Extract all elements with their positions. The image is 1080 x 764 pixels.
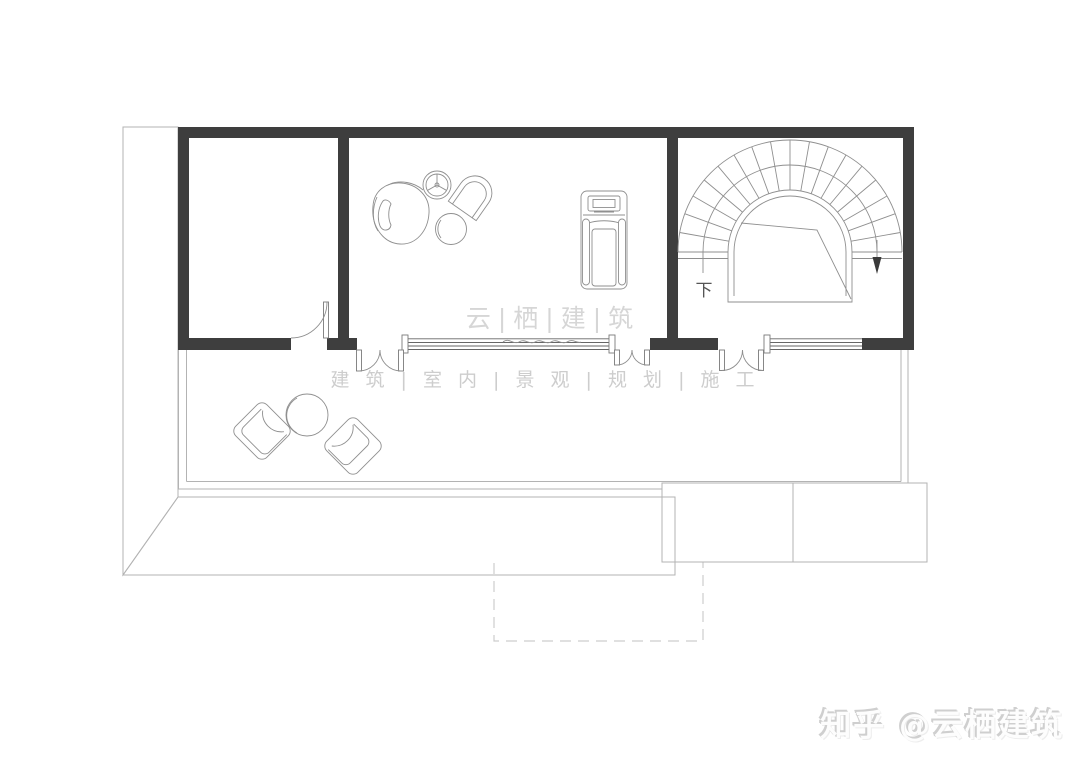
- brand-watermark: 云|栖|建|筑: [466, 304, 640, 333]
- patio-table: [286, 394, 328, 436]
- bottom-wall-seg1: [178, 338, 291, 350]
- bottom-wall-seg4: [862, 338, 914, 350]
- services-watermark: 建 筑 | 室 内 | 景 观 | 规 划 | 施 工: [330, 369, 759, 391]
- double-door-stair-room: [720, 350, 764, 371]
- door-left-room: [291, 302, 329, 338]
- door-swing-arc: [291, 302, 327, 338]
- patio-armchair-left: [231, 400, 293, 462]
- door-swing-arc: [722, 350, 763, 371]
- door-leaf: [357, 350, 362, 371]
- stair-direction-arrow-icon: [873, 257, 882, 274]
- treadmill: [581, 191, 627, 289]
- roof-tiles-right: [662, 483, 927, 562]
- door-leaf: [720, 350, 725, 371]
- side-table: [423, 171, 451, 199]
- lounge-chair: [373, 182, 429, 244]
- door-leaf: [645, 350, 650, 365]
- lounge-furniture-group: [373, 169, 499, 244]
- spiral-stair: 下: [678, 140, 902, 302]
- double-door-terrace-right: [615, 350, 650, 365]
- interior-wall-stair-room: [667, 138, 678, 338]
- exterior-wall-right: [903, 138, 914, 350]
- patio-armchair-right: [322, 415, 384, 477]
- interior-wall-left-room: [338, 138, 349, 338]
- bottom-wall-seg2: [327, 338, 357, 350]
- stair-down-label: 下: [696, 281, 713, 301]
- exterior-wall-left: [178, 138, 189, 350]
- arch-armchair: [448, 169, 498, 220]
- door-swing-arc: [359, 350, 401, 371]
- roof-tiles-bottom: [123, 497, 675, 575]
- stair-arch-outer: [728, 190, 852, 302]
- door-leaf: [615, 350, 620, 365]
- zhihu-watermark: 知乎 @云栖建筑: [820, 700, 1064, 745]
- window-stair-room: [770, 339, 862, 350]
- bottom-wall-seg3: [650, 338, 718, 350]
- door-leaf: [324, 302, 329, 338]
- ottoman: [436, 214, 467, 245]
- door-leaf: [759, 350, 764, 371]
- exterior-wall-top: [178, 127, 914, 138]
- roof-tiles-left: [123, 127, 178, 575]
- door-leaf: [399, 350, 404, 371]
- window-jamb: [764, 335, 770, 353]
- foundation-dashed-outline: [494, 562, 703, 641]
- floor-plan-image: 云|栖|建|筑 建 筑 | 室 内 | 景 观 | 规 划 | 施 工 下: [0, 0, 1080, 764]
- double-door-terrace-left: [357, 350, 404, 371]
- door-swing-arc: [617, 350, 647, 365]
- floor-plan-drawing: 云|栖|建|筑 建 筑 | 室 内 | 景 观 | 规 划 | 施 工 下: [0, 0, 1080, 764]
- patio-furniture-group: [231, 394, 384, 477]
